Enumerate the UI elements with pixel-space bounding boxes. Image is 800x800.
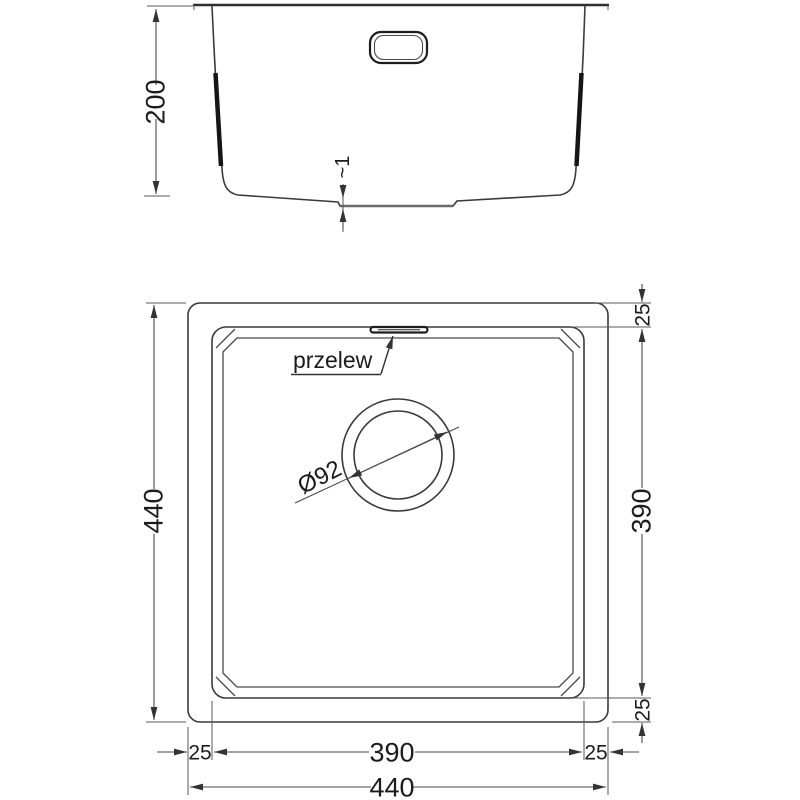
plan-overall-depth-label: 440 (138, 488, 168, 533)
plan-rim-right-label: 25 (584, 741, 607, 764)
side-overflow-opening-inner (375, 36, 423, 60)
plan-view: przelew Ø92 440 25 390 25 (138, 284, 656, 800)
plan-corner-chamfers (216, 329, 580, 696)
side-left-clip (216, 73, 222, 166)
technical-drawing-page: 200 ~1 przelew Ø92 (0, 0, 800, 800)
plan-overall-width-label: 440 (369, 772, 414, 800)
side-height-dim-label: 200 (140, 79, 170, 124)
side-section-view: 200 ~1 (140, 5, 609, 232)
plan-rim-bottom-label: 25 (631, 698, 654, 721)
plan-bowl-width-label: 390 (369, 737, 414, 767)
plan-bowl-inner-edge (223, 338, 573, 687)
drain-diameter-label: Ø92 (293, 455, 346, 500)
overflow-label: przelew (293, 347, 373, 373)
overflow-leader-arrow (381, 336, 393, 374)
plan-bowl-depth-label: 390 (626, 488, 656, 533)
sink-technical-drawing: 200 ~1 przelew Ø92 (0, 0, 800, 800)
plan-outer-rim (188, 303, 608, 722)
side-recess-dim-label: ~1 (332, 156, 354, 179)
plan-rim-left-label: 25 (188, 741, 211, 764)
plan-rim-top-label: 25 (631, 303, 654, 326)
plan-bowl-outer-edge (212, 327, 584, 698)
side-right-clip (577, 73, 582, 166)
